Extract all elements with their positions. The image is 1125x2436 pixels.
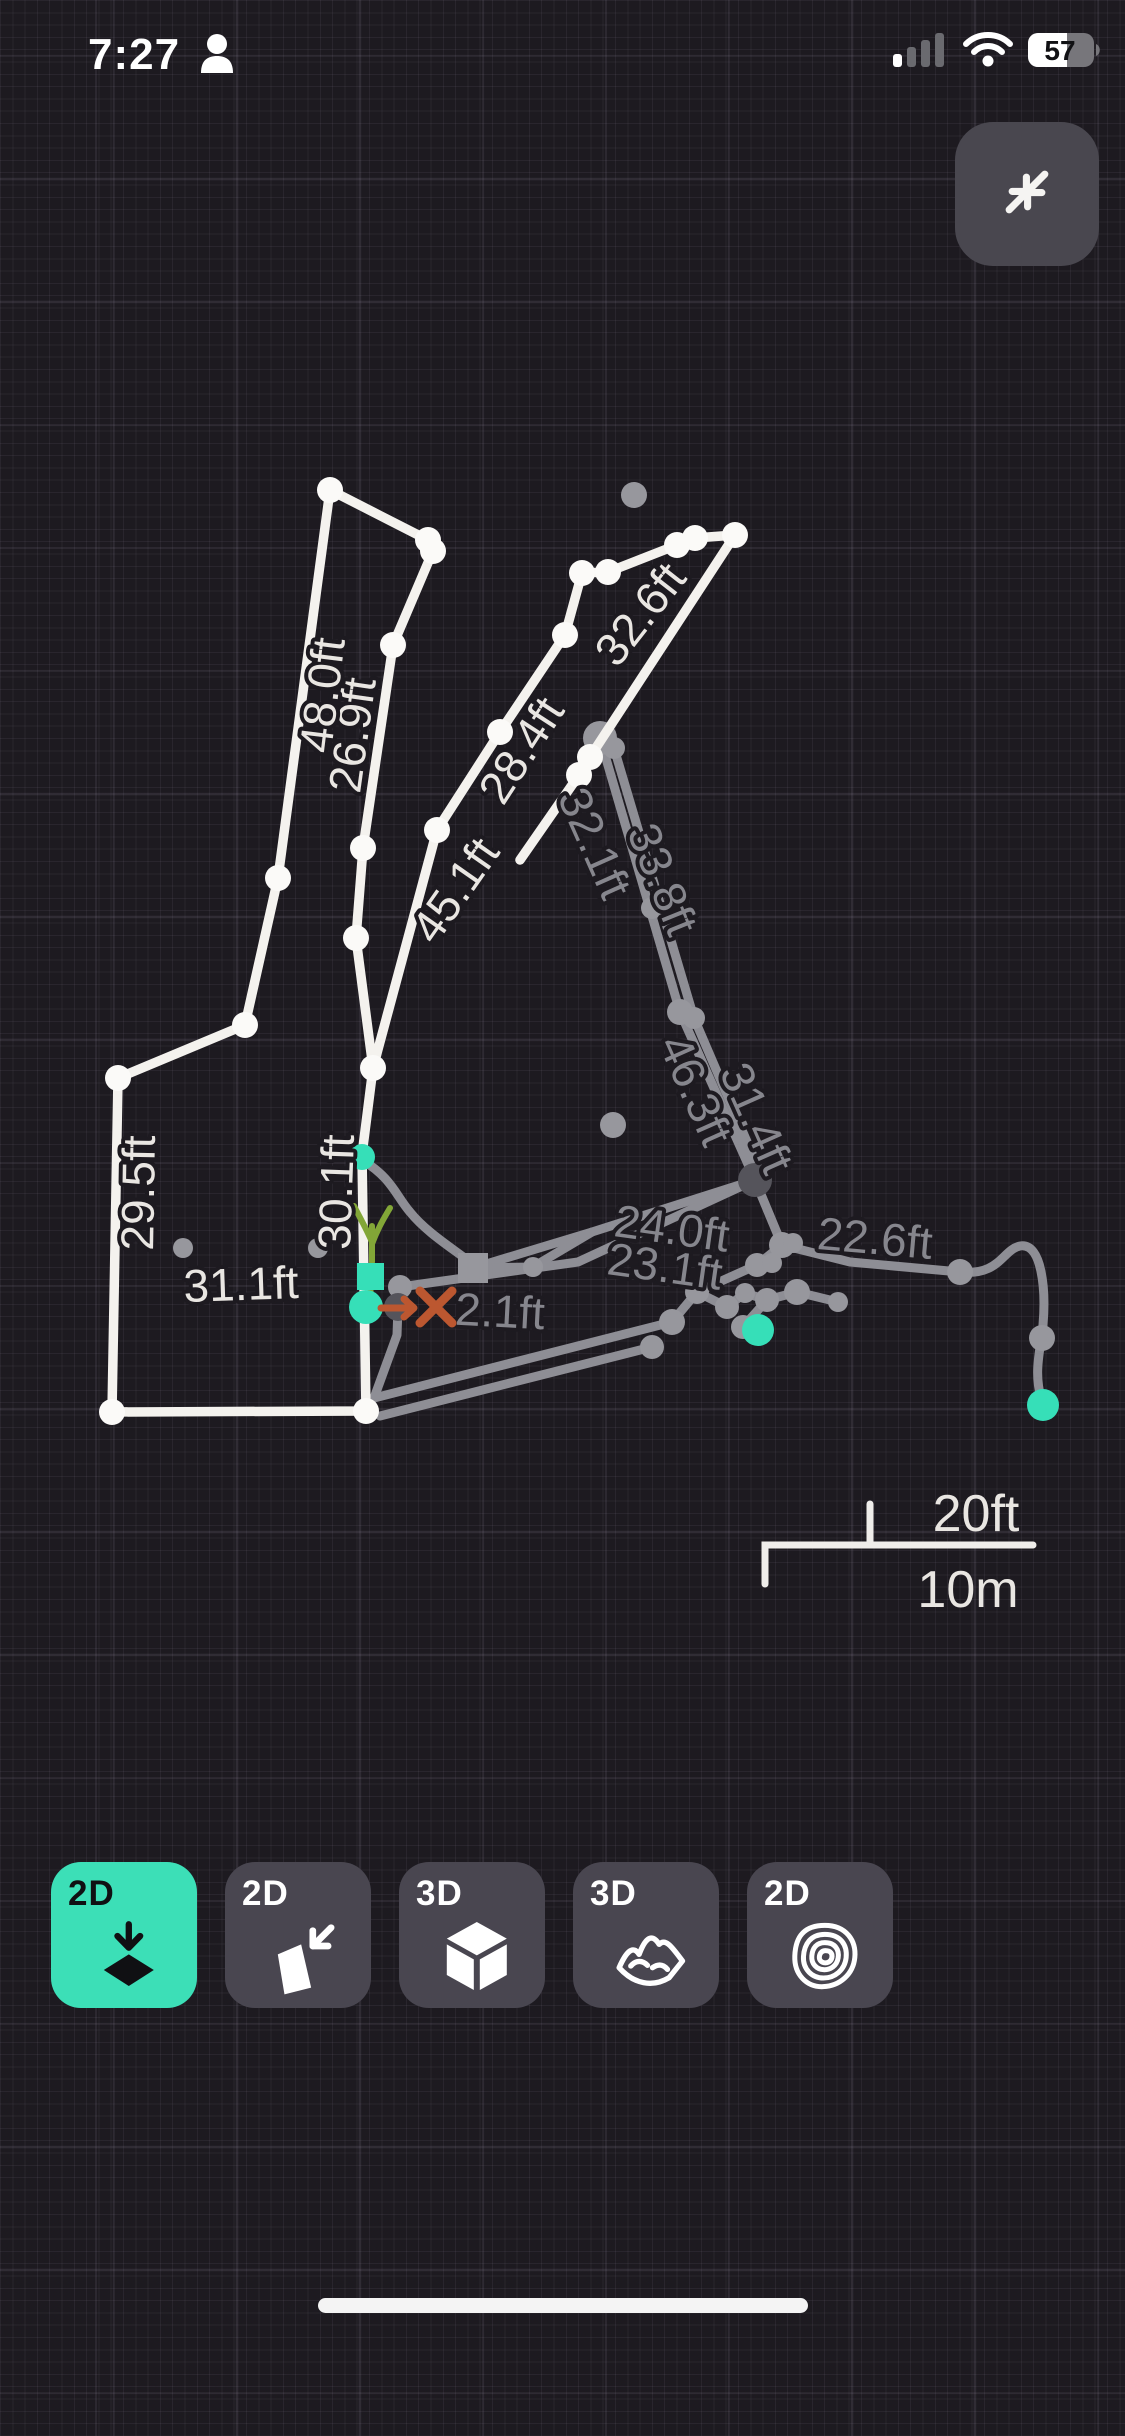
- view-mode-button-plan-view[interactable]: 2D: [51, 1862, 197, 2008]
- station-node-gray: [621, 482, 647, 508]
- cube-view-icon: [437, 1914, 517, 1998]
- segment-length-labels: 26.9ft48.0ft28.4ft45.1ft32.6ft32.1ft33.8…: [111, 552, 935, 1339]
- station-node-gray: [523, 1257, 543, 1277]
- view-mode-label: 3D: [416, 1874, 463, 1914]
- station-node-white: [232, 1012, 258, 1038]
- status-bar: 7:27: [0, 0, 1125, 110]
- teal-station-marker[interactable]: [1027, 1389, 1059, 1421]
- selected-station-square[interactable]: [357, 1263, 384, 1290]
- station-node-gray: [659, 1309, 685, 1335]
- station-node-gray: [947, 1259, 973, 1285]
- station-node-gray: [640, 1335, 664, 1359]
- segment-length-label: 29.5ft: [111, 1135, 165, 1251]
- station-node-gray: [683, 1007, 705, 1029]
- scale-bar: 20ft10m: [765, 1485, 1033, 1619]
- station-node-gray: [715, 1295, 739, 1319]
- station-node-white: [99, 1399, 125, 1425]
- station-node-gray: [783, 1233, 803, 1253]
- view-mode-label: 2D: [68, 1874, 115, 1914]
- scale-imperial-label: 20ft: [933, 1485, 1020, 1543]
- station-node-white: [569, 560, 595, 586]
- station-node-white: [360, 1055, 386, 1081]
- station-node-white: [265, 865, 291, 891]
- station-node-gray: [828, 1292, 848, 1312]
- wifi-icon: [961, 30, 1015, 75]
- station-node-white: [350, 835, 376, 861]
- station-node-white: [380, 632, 406, 658]
- station-node-gray: [755, 1288, 779, 1312]
- station-node-gray: [1029, 1325, 1055, 1351]
- station-node-gray: [784, 1279, 810, 1305]
- cellular-signal-icon: [891, 30, 949, 75]
- station-node-gray: [600, 1112, 626, 1138]
- station-node-white: [682, 525, 708, 551]
- station-node-white: [595, 559, 621, 585]
- view-mode-button-profile-view[interactable]: 2D: [225, 1862, 371, 2008]
- view-mode-toolbar: 2D2D3D3D2D: [51, 1862, 893, 2008]
- person-icon: [200, 33, 234, 80]
- collapse-arrows-icon: [989, 154, 1065, 235]
- map-canvas[interactable]: 26.9ft48.0ft28.4ft45.1ft32.6ft32.1ft33.8…: [0, 0, 1125, 2436]
- station-node-white: [420, 538, 446, 564]
- segment-length-label: 22.6ft: [815, 1207, 934, 1269]
- station-node-white: [343, 925, 369, 951]
- scale-metric-label: 10m: [917, 1561, 1018, 1619]
- station-node-gray: [735, 1283, 755, 1303]
- terrain-view-icon: [611, 1914, 691, 1998]
- station-node-white: [317, 477, 343, 503]
- view-mode-button-contour-view[interactable]: 2D: [747, 1862, 893, 2008]
- station-node-white: [722, 522, 748, 548]
- survey-leg-gray: [362, 1160, 470, 1262]
- station-node-gray: [173, 1238, 193, 1258]
- view-mode-button-terrain-view[interactable]: 3D: [573, 1862, 719, 2008]
- segment-length-label: 2.1ft: [454, 1283, 546, 1340]
- station-node-white: [424, 817, 450, 843]
- teal-station-marker[interactable]: [742, 1314, 774, 1346]
- view-mode-label: 3D: [590, 1874, 637, 1914]
- profile-view-icon: [263, 1914, 343, 1998]
- segment-length-label: 31.1ft: [183, 1256, 300, 1312]
- map-background-grid: 26.9ft48.0ft28.4ft45.1ft32.6ft32.1ft33.8…: [0, 0, 1125, 2436]
- battery-percent: 57: [1044, 35, 1075, 66]
- home-indicator[interactable]: [318, 2298, 808, 2313]
- segment-length-label: 30.1ft: [308, 1133, 364, 1250]
- plan-view-icon: [89, 1914, 169, 1998]
- battery-icon: 57: [1027, 30, 1105, 75]
- status-time: 7:27: [88, 30, 180, 80]
- station-node-gray: [762, 1253, 782, 1273]
- view-mode-label: 2D: [764, 1874, 811, 1914]
- view-mode-label: 2D: [242, 1874, 289, 1914]
- station-node-white: [552, 622, 578, 648]
- station-node-square: [458, 1253, 488, 1283]
- collapse-map-button[interactable]: [955, 122, 1099, 266]
- station-node-white: [353, 1398, 379, 1424]
- view-mode-button-cube-view[interactable]: 3D: [399, 1862, 545, 2008]
- contour-view-icon: [785, 1914, 865, 1998]
- station-node-white: [105, 1065, 131, 1091]
